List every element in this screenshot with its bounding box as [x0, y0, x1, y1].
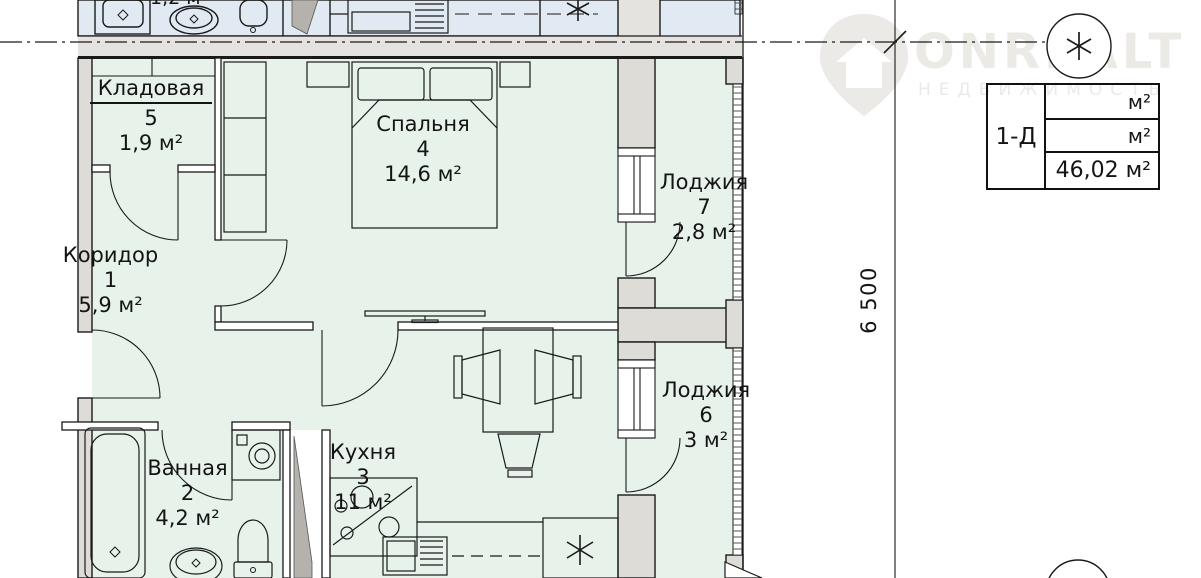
room-number: 2: [120, 481, 255, 506]
room-name: Кухня: [303, 440, 423, 465]
dimension-label: 6 500: [857, 266, 881, 334]
room-label-bedroom: Спальня 4 14,6 м²: [343, 112, 503, 187]
room-number: 6: [650, 403, 762, 428]
room-name: Лоджия: [650, 378, 762, 403]
unit-id: 1-Д: [988, 85, 1046, 188]
room-area: 3 м²: [650, 428, 762, 453]
legend-row: м²: [1046, 118, 1158, 151]
room-label-kitchen: Кухня 3 11 м²: [303, 440, 423, 515]
room-area: 2,8 м²: [648, 220, 760, 245]
unit-legend-table: 1-Д м² м² 46,02 м²: [986, 83, 1160, 190]
room-area: 1,9 м²: [90, 131, 212, 156]
room-number: 4: [343, 137, 503, 162]
axis-marker-icon: [1047, 14, 1111, 78]
room-label-corridor: Коридор 1 5,9 м²: [48, 243, 173, 318]
room-name: Коридор: [48, 243, 173, 268]
legend-total-area: 46,02 м²: [1046, 151, 1158, 188]
axis-marker-icon: [1046, 560, 1110, 578]
room-number: 1: [48, 268, 173, 293]
room-name: Ванная: [120, 456, 255, 481]
room-label-storage: Кладовая 5 1,9 м²: [90, 76, 212, 156]
room-name: Спальня: [343, 112, 503, 137]
room-name: Кладовая: [90, 76, 212, 104]
room-number: 7: [648, 195, 760, 220]
slab-band: [78, 36, 742, 58]
room-label-loggia-7: Лоджия 7 2,8 м²: [648, 170, 760, 245]
clipped-upper-unit-area: 1,2 м²: [150, 0, 240, 9]
legend-row: м²: [1046, 85, 1158, 118]
room-number: 3: [303, 465, 423, 490]
floorplan-canvas: ONREALT НЕДВИЖИМОСТЬ: [0, 0, 1201, 578]
room-area: 4,2 м²: [120, 506, 255, 531]
room-name: Лоджия: [648, 170, 760, 195]
room-label-bathroom: Ванная 2 4,2 м²: [120, 456, 255, 531]
room-area: 11 м²: [303, 490, 423, 515]
room-number: 5: [90, 106, 212, 131]
room-area: 5,9 м²: [48, 293, 173, 318]
room-label-loggia-6: Лоджия 6 3 м²: [650, 378, 762, 453]
room-area: 14,6 м²: [343, 162, 503, 187]
